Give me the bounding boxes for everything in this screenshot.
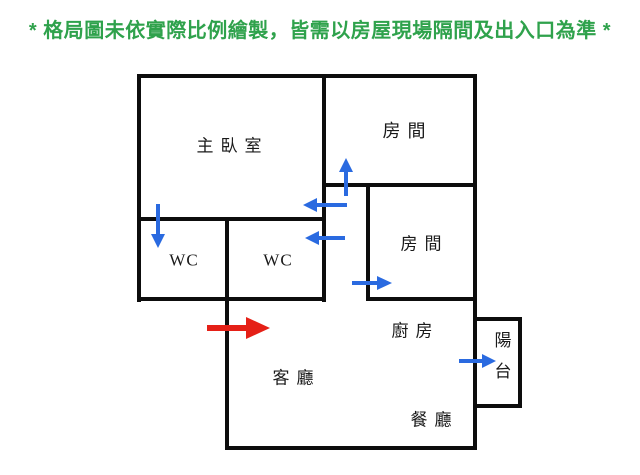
wall-wc-living-divider	[225, 217, 229, 450]
room-label-bedroom-top: 房間	[376, 122, 433, 140]
main-entrance-arrow-icon	[207, 317, 270, 339]
room-label-wc-shared: WC	[263, 252, 292, 269]
door-arrow-bedroom-middle-right-icon	[352, 276, 392, 290]
room-label-bedroom-middle: 房間	[394, 236, 449, 253]
wall-outer-left	[137, 74, 141, 302]
wall-bedroom-mid-bottom	[366, 297, 477, 301]
door-arrow-balcony-right-icon	[459, 354, 496, 368]
wall-bedrooms-divider	[322, 183, 477, 187]
room-label-living-room: 客廳	[266, 370, 321, 387]
arrow-overlay	[0, 0, 640, 475]
wall-outer-bottom	[225, 446, 477, 450]
wall-wc-bottom	[137, 297, 326, 301]
door-arrow-master-wc-down-icon	[151, 204, 165, 248]
wall-outer-right	[473, 74, 477, 450]
room-label-kitchen: 廚房	[385, 323, 440, 340]
room-label-balcony: 陽台	[493, 331, 510, 393]
floor-plan-page: * 格局圖未依實際比例繪製，皆需以房屋現場隔間及出入口為準 * 主臥室 房間 房…	[0, 0, 640, 475]
wall-balcony-right	[518, 317, 522, 408]
room-label-master-bedroom: 主臥室	[190, 138, 269, 155]
disclaimer-text: * 格局圖未依實際比例繪製，皆需以房屋現場隔間及出入口為準 *	[0, 14, 640, 43]
wall-outer-top	[137, 74, 477, 78]
door-arrow-bedroom-top-up-icon	[339, 158, 353, 196]
wall-bedroom-mid-left	[366, 183, 370, 301]
wall-center-divider	[322, 74, 326, 302]
wall-master-bottom	[137, 217, 326, 221]
wall-balcony-top	[477, 317, 522, 321]
room-label-wc-master: WC	[169, 252, 198, 269]
wall-balcony-bottom	[477, 404, 522, 408]
room-label-dining-room: 餐廳	[404, 412, 459, 429]
